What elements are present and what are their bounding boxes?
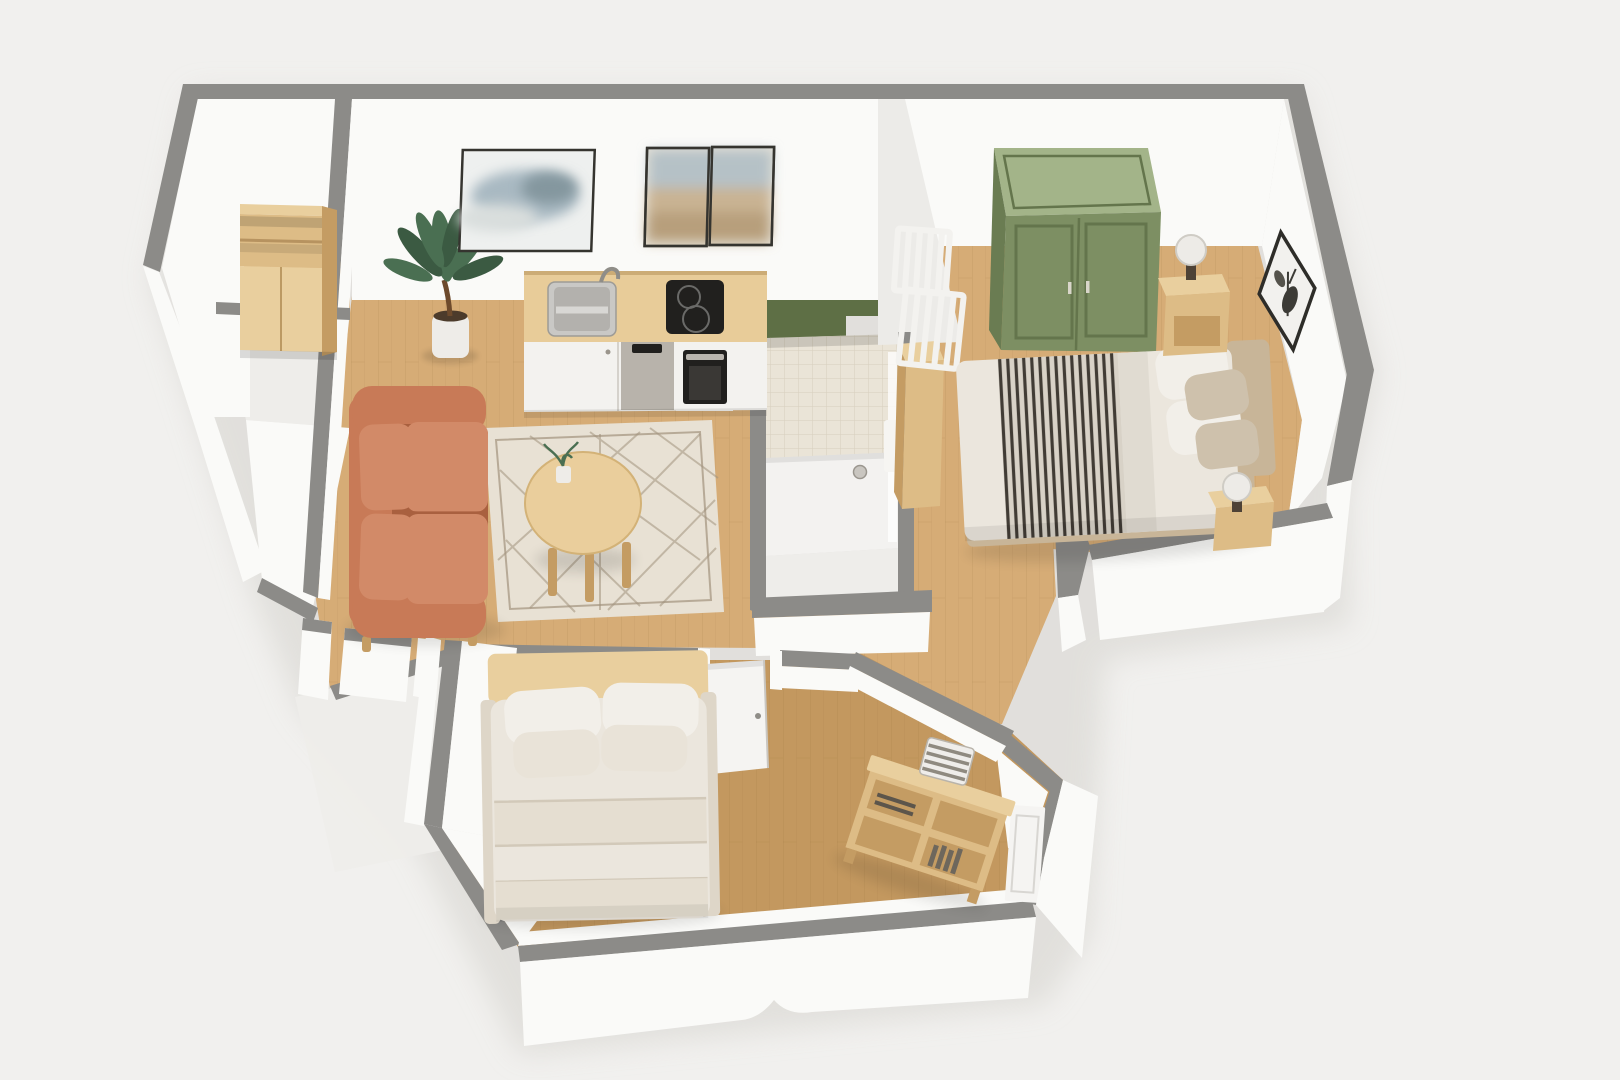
tall-cabinet-front bbox=[902, 360, 944, 509]
bed2-pillow-front bbox=[601, 724, 688, 771]
wardrobe bbox=[989, 148, 1161, 352]
shower-tile-grid bbox=[766, 334, 900, 458]
wall-art-single bbox=[456, 150, 595, 251]
table-leg bbox=[548, 548, 557, 596]
bathroom-south-wall-face bbox=[754, 612, 930, 656]
nightstand-foot-front bbox=[1213, 502, 1274, 551]
kitchen-counter bbox=[524, 269, 767, 418]
cooktop bbox=[666, 280, 724, 334]
cabinet-knob bbox=[606, 350, 611, 355]
wall-art-diptych bbox=[645, 147, 775, 246]
sofa bbox=[345, 386, 505, 652]
shelf-shadow-band bbox=[240, 216, 322, 228]
wardrobe-handle bbox=[1086, 281, 1090, 293]
bed-cream bbox=[478, 650, 723, 931]
shower-drain bbox=[854, 466, 867, 479]
shelf-divider bbox=[240, 240, 322, 242]
sofa-leg bbox=[362, 636, 371, 652]
wardrobe-front bbox=[1001, 212, 1161, 352]
shelf-side bbox=[322, 206, 337, 356]
door-handle bbox=[755, 713, 761, 719]
floor-plan-render bbox=[0, 0, 1620, 1080]
north-wall-cap bbox=[183, 84, 1302, 99]
bed2-pillow-front bbox=[512, 729, 600, 779]
oven bbox=[676, 342, 733, 411]
counter-top-edge bbox=[524, 271, 767, 275]
dishwasher bbox=[621, 342, 674, 410]
storage-shelf-unit bbox=[240, 204, 337, 360]
nightstand-head-cubby bbox=[1174, 316, 1220, 346]
door-jamb-right bbox=[770, 650, 782, 690]
shower-tray bbox=[766, 452, 900, 556]
sofa-seat-cushion bbox=[406, 422, 488, 512]
shelf-top bbox=[240, 204, 322, 216]
bed-striped-runner bbox=[998, 353, 1127, 539]
sofa-seat-cushion bbox=[406, 514, 488, 604]
table-leg bbox=[585, 552, 594, 602]
wardrobe-handle bbox=[1068, 282, 1072, 294]
bed2-quilt-band bbox=[494, 798, 707, 846]
table-top bbox=[525, 452, 641, 554]
table-leg bbox=[622, 542, 631, 588]
floor-plan-canvas bbox=[0, 0, 1620, 1080]
pillow-beige bbox=[1194, 418, 1261, 471]
